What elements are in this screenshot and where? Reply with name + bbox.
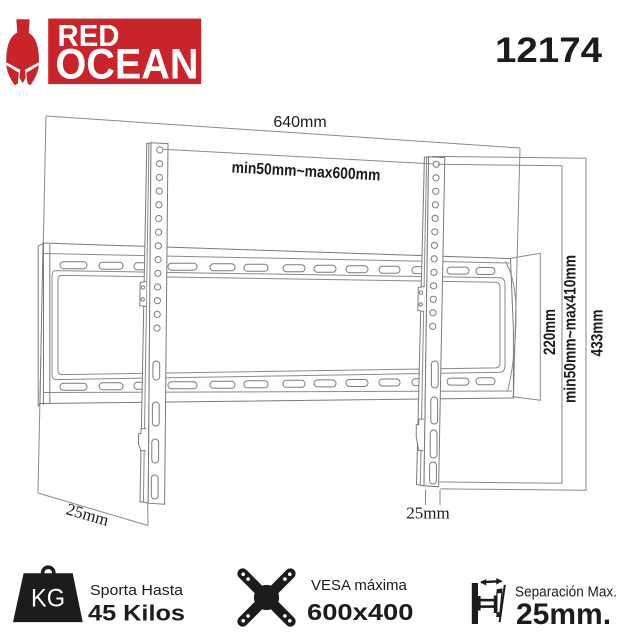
svg-text:OCEAN: OCEAN (56, 41, 199, 89)
svg-text:min50mm~max410mm: min50mm~max410mm (561, 255, 580, 403)
svg-text:433mm: 433mm (588, 310, 607, 357)
svg-text:12174: 12174 (495, 31, 603, 70)
svg-text:Sporta Hasta: Sporta Hasta (90, 582, 184, 599)
svg-text:45 Kilos: 45 Kilos (88, 601, 185, 626)
svg-text:VESA máxima: VESA máxima (311, 577, 408, 594)
svg-text:220mm: 220mm (540, 309, 559, 355)
svg-text:25mm: 25mm (64, 499, 111, 530)
svg-text:25mm.: 25mm. (516, 598, 611, 631)
svg-text:min50mm~max600mm: min50mm~max600mm (231, 159, 381, 184)
svg-text:25mm: 25mm (406, 504, 449, 523)
svg-text:600x400: 600x400 (307, 599, 414, 625)
svg-text:KG: KG (31, 585, 65, 613)
svg-text:640mm: 640mm (273, 114, 326, 131)
